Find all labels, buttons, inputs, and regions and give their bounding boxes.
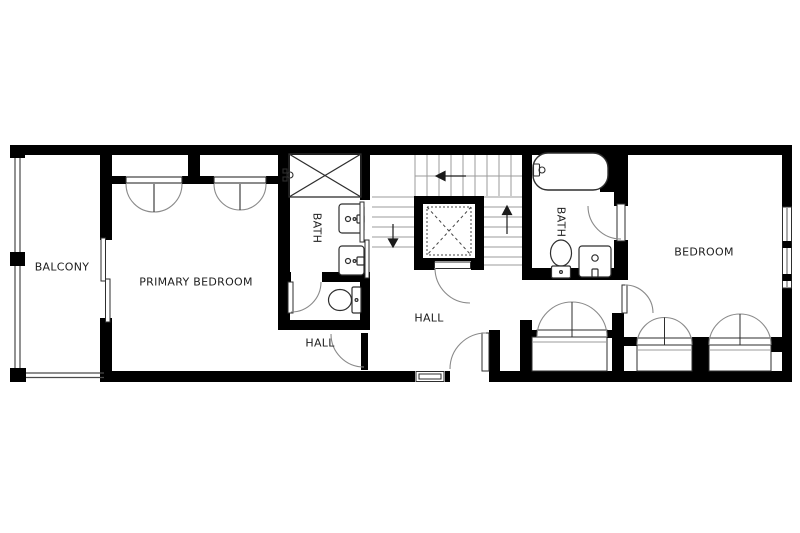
shower (289, 154, 361, 197)
elevator-lobby-door (435, 262, 471, 303)
bottom-wall-window (416, 372, 444, 382)
entry-door (450, 333, 489, 371)
right-bath-sink (579, 246, 611, 277)
room-label-balcony: BALCONY (35, 261, 90, 274)
balcony-railing-posts (10, 145, 26, 382)
balcony-sliding-door (101, 238, 110, 322)
elevator-shaft (414, 196, 484, 270)
wc-door (288, 282, 321, 313)
floor-plan-drawing (0, 0, 800, 533)
stairs-right-flight (484, 207, 522, 265)
bedroom-window (783, 207, 792, 288)
right-bath-toilet (551, 240, 572, 278)
room-label-primary-bedroom: PRIMARY BEDROOM (139, 276, 253, 289)
right-bath-door (588, 204, 625, 241)
room-label-bath-left: BATH (311, 213, 324, 243)
room-label-hall-center: HALL (414, 312, 443, 325)
room-label-bedroom: BEDROOM (674, 246, 734, 259)
wc-toilet (329, 287, 362, 313)
bedroom-closet-b (709, 314, 771, 371)
room-label-bath-right: BATH (555, 207, 568, 237)
floor-plan: BALCONY PRIMARY BEDROOM BATH HALL HALL B… (0, 0, 800, 533)
bedroom-door (622, 285, 653, 313)
bedroom-closet-a (637, 318, 692, 372)
room-label-hall-lower: HALL (305, 337, 334, 350)
lower-hall-door (331, 333, 368, 370)
hall-closet (532, 302, 607, 371)
